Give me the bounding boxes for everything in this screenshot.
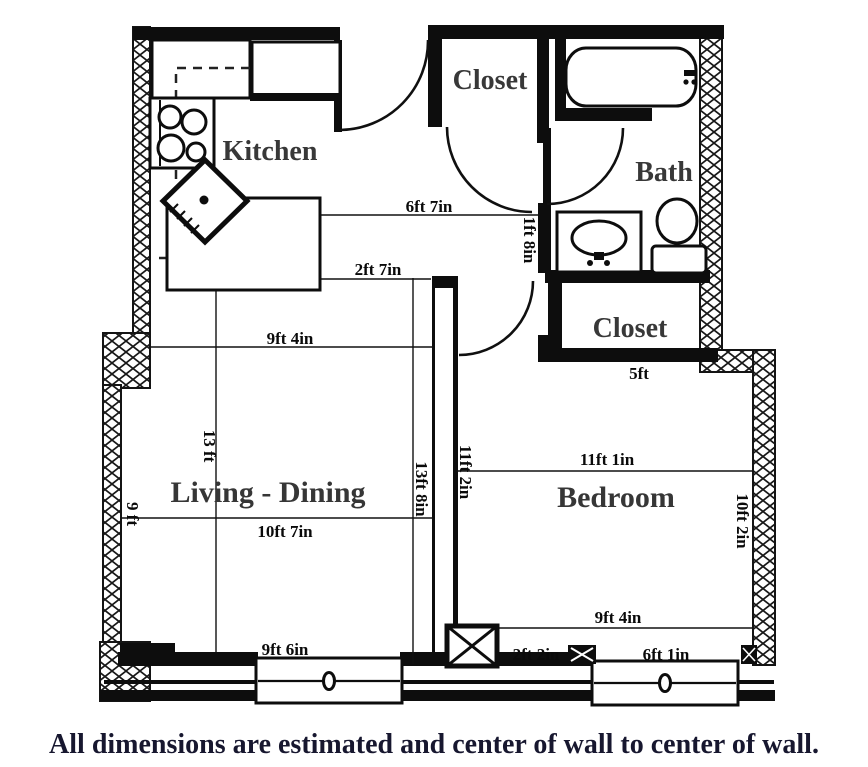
- wall-tub-left: [555, 39, 566, 111]
- wall-partition-left-line: [432, 276, 435, 666]
- dim-label-bedroom-bottom: 9ft 4in: [595, 608, 642, 627]
- floor-plan-svg: Kitchen Closet Bath Closet Living - Dini…: [0, 0, 868, 767]
- wall-left-living: [103, 385, 121, 655]
- corner-sink-drain: [200, 196, 209, 205]
- wall-tub-bottom: [555, 108, 652, 121]
- dim-label-hall-to-bath: 6ft 7in: [406, 197, 453, 216]
- bath-door-leaf: [543, 128, 551, 204]
- stove-burner: [182, 110, 206, 134]
- wall-left-kitchen: [133, 27, 150, 345]
- dim-label-closet-width: 5ft: [629, 364, 649, 383]
- living-window-latch: [324, 673, 335, 690]
- wall-right-bath: [700, 33, 722, 357]
- vanity-basin: [572, 221, 626, 255]
- bathtub-faucet-knob: [683, 79, 688, 84]
- dim-label-living-length: 13 ft: [200, 430, 219, 463]
- dim-label-bedroom-depth: 11ft 2in: [456, 445, 475, 500]
- toilet-bowl: [657, 199, 697, 243]
- wall-left-block: [103, 333, 150, 388]
- bedroom-window-latch: [660, 675, 671, 692]
- room-label-bath: Bath: [635, 157, 693, 188]
- bathtub-faucet-knob: [691, 79, 696, 84]
- dim-label-right-wall: 10ft 2in: [733, 493, 752, 549]
- wall-top-right: [428, 25, 724, 39]
- kitchen-counter-right-edge: [250, 93, 342, 101]
- wall-closet-left: [428, 39, 442, 127]
- dim-label-wall-segment: 2ft 2in: [513, 645, 560, 664]
- room-label-bedroom: Bedroom: [557, 481, 675, 514]
- caption-text: All dimensions are estimated and center …: [49, 729, 819, 760]
- wall-closet2-bottom: [540, 348, 718, 362]
- dim-label-bedroom-width: 11ft 1in: [580, 450, 635, 469]
- stove-burner: [187, 143, 205, 161]
- dim-label-island-to-partition: 2ft 7in: [355, 260, 402, 279]
- wall-top-kitchen: [133, 27, 340, 40]
- vanity-faucet: [594, 252, 604, 260]
- vanity-faucet-knob: [604, 260, 610, 266]
- room-label-living-dining: Living - Dining: [170, 476, 365, 509]
- wall-right-bedroom: [753, 350, 775, 665]
- dim-label-sink-wall: 1ft 8in: [520, 217, 539, 264]
- dim-label-living-top-width: 9ft 4in: [267, 329, 314, 348]
- bathtub-faucet: [684, 70, 696, 76]
- kitchen-counter-right: [252, 42, 340, 98]
- floor-plan-page: Kitchen Closet Bath Closet Living - Dini…: [0, 0, 868, 767]
- dim-label-living-window: 9ft 6in: [262, 640, 309, 659]
- bathtub: [566, 48, 696, 106]
- stove-burner: [159, 106, 181, 128]
- dim-label-partition-length: 13ft 8in: [412, 461, 431, 517]
- stove-burner: [158, 135, 184, 161]
- wall-bottom-living-left: [118, 652, 258, 666]
- dim-label-bedroom-window: 6ft 1in: [643, 645, 690, 664]
- dim-label-left-wall: 9 ft: [123, 502, 142, 526]
- vanity-faucet-knob: [587, 260, 593, 266]
- room-label-closet-bedroom: Closet: [593, 313, 668, 344]
- wall-closet-right: [537, 39, 549, 143]
- room-label-kitchen: Kitchen: [223, 136, 318, 167]
- room-label-closet-top: Closet: [453, 65, 528, 96]
- dim-label-living-width: 10ft 7in: [257, 522, 313, 541]
- toilet-tank: [652, 246, 706, 273]
- wall-bottom-living-right: [400, 652, 433, 666]
- wall-partition-top-cap: [432, 276, 458, 288]
